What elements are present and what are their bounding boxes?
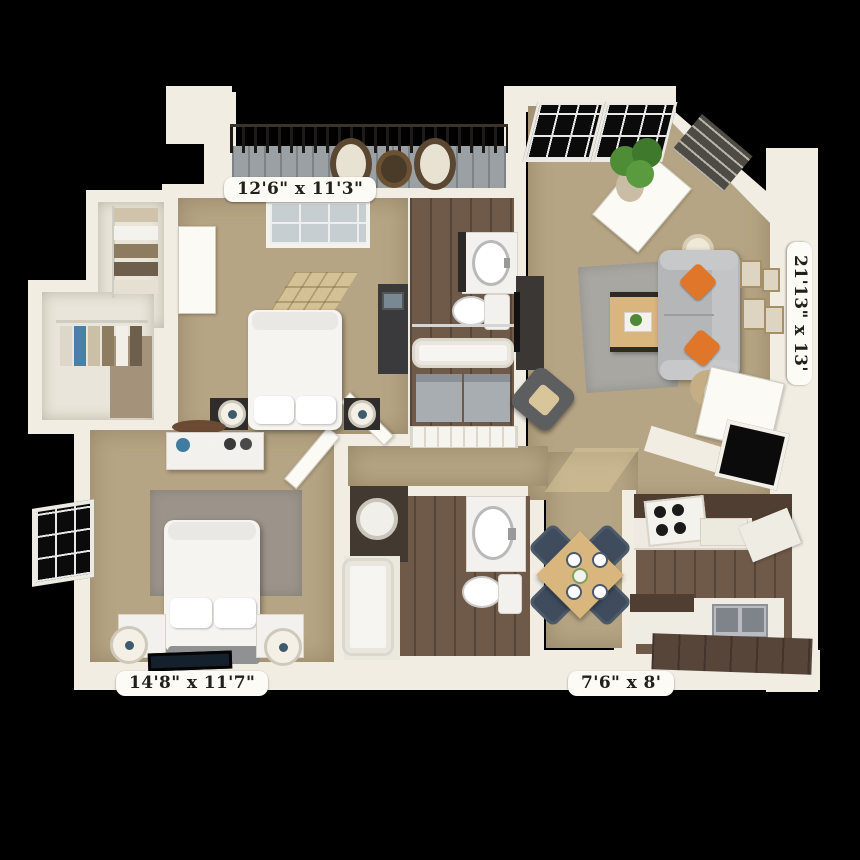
hanging-clothes: [130, 326, 142, 366]
vanity-edge: [458, 232, 466, 292]
faucet: [508, 528, 516, 540]
toilet-bowl: [462, 576, 502, 608]
dresser-decor: [240, 438, 252, 450]
hanging-clothes: [114, 244, 158, 258]
sink-basin: [716, 608, 738, 632]
wall-art-frame: [742, 298, 766, 330]
hanging-clothes: [116, 326, 128, 366]
stove-burner: [656, 524, 668, 536]
tv: [514, 292, 520, 352]
media-console: [516, 276, 544, 370]
dresser-decor: [206, 440, 216, 450]
counter-dark-section: [630, 594, 694, 612]
dresser-decor: [224, 438, 236, 450]
hallway-floor: [348, 446, 548, 486]
wall-art-frame: [740, 260, 762, 288]
towel-bar: [412, 324, 514, 327]
hanging-clothes: [60, 326, 72, 366]
dryer: [464, 374, 510, 422]
bed-fold: [168, 522, 256, 540]
bed-pillow: [214, 598, 256, 628]
plant-leaves: [626, 160, 654, 188]
table-lamp: [110, 626, 148, 664]
hanging-clothes: [114, 226, 158, 240]
bed-fold: [252, 312, 338, 330]
stove-burner: [674, 522, 686, 534]
table-centerpiece: [572, 568, 588, 584]
hanging-clothes: [114, 280, 158, 294]
hanging-clothes: [88, 326, 100, 366]
hanging-clothes: [114, 208, 158, 222]
sofa-seam: [664, 314, 714, 316]
hanging-clothes: [74, 326, 86, 366]
balcony-table: [376, 150, 412, 188]
balcony-chair: [414, 138, 456, 190]
desk-picture-frame: [382, 292, 404, 310]
sink-basin: [742, 608, 764, 632]
toilet-tank: [498, 574, 522, 614]
table-lamp: [348, 400, 376, 428]
breakfast-bar: [651, 633, 812, 675]
hanging-clothes: [102, 326, 114, 366]
place-setting: [566, 584, 582, 600]
table-lamp: [264, 628, 302, 666]
stove-burner: [654, 506, 666, 518]
dimension-label-bedroom1: 12'6" x 11'3": [224, 177, 376, 202]
closet-door-bedroom1: [178, 226, 216, 314]
water-heater: [356, 498, 398, 540]
bathtub-bathroom1: [412, 338, 514, 368]
floorplan-canvas: 12'6" x 11'3" 21'13" x 13' 14'8" x 11'7"…: [0, 0, 860, 860]
faucet: [504, 258, 510, 268]
bathtub-bathroom2: [342, 558, 394, 656]
place-setting: [592, 552, 608, 568]
sofa-back: [712, 254, 738, 376]
dimension-label-living-room: 21'13" x 13': [787, 242, 812, 385]
balcony-railing: [230, 124, 508, 153]
framed-art: [148, 651, 233, 672]
dresser-decor: [176, 438, 190, 452]
dimension-label-kitchen: 7'6" x 8': [568, 671, 674, 696]
place-setting: [592, 584, 608, 600]
dimension-label-bedroom2: 14'8" x 11'7": [116, 671, 268, 696]
place-setting: [566, 552, 582, 568]
bedroom2-window: [32, 499, 94, 587]
wall-art-frame: [762, 268, 780, 292]
stove: [644, 495, 708, 547]
bed-pillow: [254, 396, 294, 424]
coffee-table-plant: [630, 314, 642, 326]
washer: [416, 374, 462, 422]
stove-burner: [672, 504, 684, 516]
closet-b-rod: [56, 320, 148, 323]
laundry-bifold-doors: [410, 426, 518, 448]
bed-pillow: [170, 598, 212, 628]
bed-pillow: [296, 396, 336, 424]
wall-art-frame: [764, 306, 784, 334]
hanging-clothes: [114, 262, 158, 276]
